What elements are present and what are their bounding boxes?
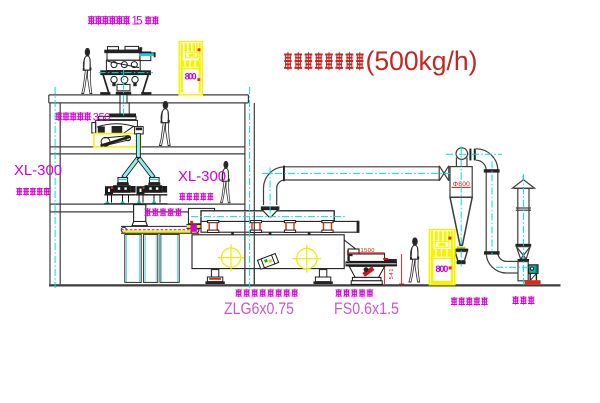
svg-text:541: 541 xyxy=(389,269,395,280)
svg-text:1.5: 1.5 xyxy=(132,15,143,27)
svg-text:(500kg/h): (500kg/h) xyxy=(366,46,478,76)
svg-text:350: 350 xyxy=(93,112,111,124)
svg-text:800: 800 xyxy=(435,264,448,275)
svg-text:XL-300: XL-300 xyxy=(178,168,226,185)
svg-text:XL-300: XL-300 xyxy=(14,162,62,179)
svg-text:ZLG6x0.75: ZLG6x0.75 xyxy=(224,299,294,318)
svg-text:1500: 1500 xyxy=(361,248,375,254)
svg-text:800: 800 xyxy=(185,72,197,82)
svg-text:FS0.6x1.5: FS0.6x1.5 xyxy=(334,299,399,318)
